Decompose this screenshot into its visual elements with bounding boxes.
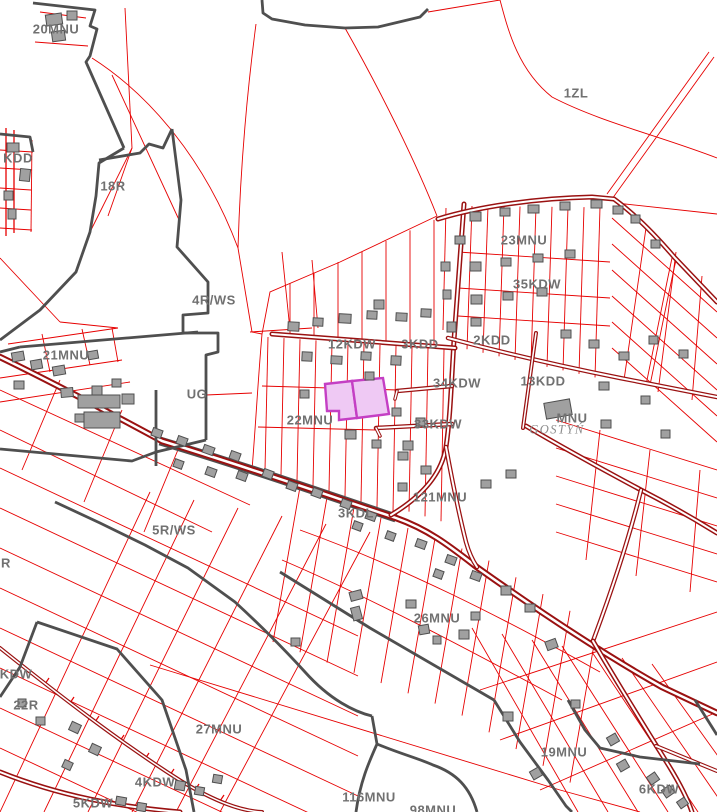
building: [345, 430, 356, 439]
map-canvas: [0, 0, 717, 812]
building: [481, 480, 491, 488]
building: [398, 483, 407, 491]
building: [331, 356, 342, 365]
building: [606, 733, 619, 746]
building: [14, 381, 24, 389]
map-viewport[interactable]: 20MNUKDD18R1ZL23MNU35KDW4R/WS12KDW3KDD2K…: [0, 0, 717, 812]
building: [396, 313, 407, 322]
building: [433, 569, 444, 580]
building: [471, 318, 481, 326]
building: [471, 295, 482, 304]
building: [528, 205, 539, 213]
building: [19, 169, 30, 182]
building: [470, 212, 481, 221]
building: [421, 466, 431, 474]
building: [4, 191, 13, 200]
building: [136, 802, 146, 811]
building: [374, 300, 384, 309]
building: [392, 408, 401, 416]
building: [641, 396, 650, 404]
building: [591, 200, 602, 208]
building: [649, 336, 658, 344]
highlighted-parcel[interactable]: [352, 378, 389, 418]
building: [36, 717, 45, 725]
building: [205, 467, 217, 478]
building: [313, 318, 323, 327]
building: [601, 420, 611, 428]
building: [506, 470, 516, 478]
building: [646, 772, 659, 785]
building: [87, 350, 98, 360]
building: [302, 352, 312, 362]
building: [78, 395, 120, 408]
building: [537, 288, 547, 296]
building: [403, 441, 413, 450]
building: [84, 412, 120, 428]
building: [300, 390, 309, 398]
building: [372, 440, 381, 448]
building: [361, 352, 371, 361]
building: [503, 292, 513, 300]
building: [651, 240, 660, 248]
building: [350, 606, 362, 621]
building: [433, 636, 441, 644]
building: [212, 774, 222, 783]
building: [471, 612, 480, 620]
building: [115, 796, 126, 806]
building: [679, 350, 688, 358]
building: [661, 430, 670, 438]
building: [470, 262, 481, 271]
building: [599, 382, 609, 390]
building: [18, 699, 26, 707]
building: [194, 786, 204, 795]
building: [443, 290, 451, 299]
building: [565, 250, 575, 258]
building: [533, 254, 543, 262]
building: [173, 459, 184, 470]
building: [544, 399, 572, 419]
building: [11, 351, 24, 362]
building: [631, 215, 640, 223]
building: [352, 521, 363, 532]
building: [112, 379, 121, 387]
building: [589, 340, 599, 348]
building: [45, 13, 62, 26]
building: [418, 624, 429, 635]
building: [51, 30, 65, 42]
building: [459, 630, 469, 639]
building: [291, 638, 300, 646]
building: [288, 322, 299, 332]
building: [367, 311, 377, 320]
building: [501, 586, 511, 595]
building: [503, 712, 513, 721]
building: [455, 236, 465, 244]
building: [339, 314, 351, 324]
building: [52, 365, 65, 376]
building: [545, 638, 558, 650]
building: [661, 785, 674, 798]
building: [398, 452, 408, 460]
building: [416, 418, 425, 426]
building: [571, 700, 580, 708]
building: [62, 759, 74, 770]
building: [391, 356, 401, 366]
building: [174, 780, 185, 791]
building: [7, 143, 19, 152]
building: [385, 531, 396, 542]
building: [616, 759, 629, 772]
building: [441, 262, 450, 271]
building: [525, 604, 535, 612]
building: [421, 309, 431, 318]
building: [447, 322, 456, 332]
building: [67, 11, 77, 20]
building: [415, 539, 427, 550]
building: [406, 600, 416, 608]
building: [61, 387, 74, 397]
building: [445, 555, 457, 566]
building: [89, 743, 102, 755]
building: [619, 352, 629, 360]
building: [500, 208, 510, 216]
highlighted-parcels-layer: [325, 378, 389, 420]
building: [365, 372, 374, 380]
building: [560, 202, 570, 210]
building: [122, 394, 134, 404]
building: [613, 206, 623, 214]
building: [92, 386, 102, 395]
building: [30, 359, 42, 370]
building: [8, 209, 16, 219]
building: [501, 258, 511, 266]
building: [561, 330, 571, 338]
building: [69, 721, 82, 733]
